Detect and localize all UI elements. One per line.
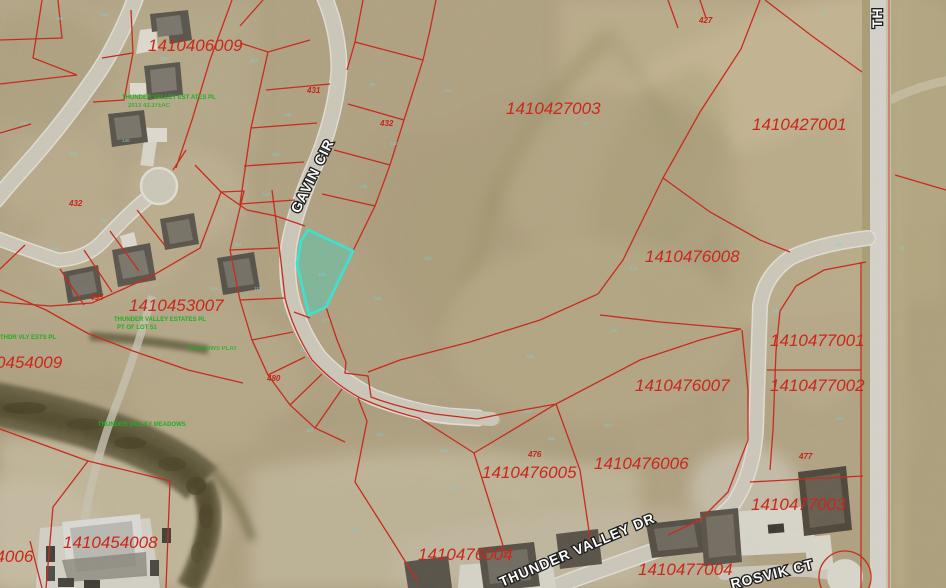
svg-text:PT OF LOT 51: PT OF LOT 51 — [117, 325, 157, 331]
svg-text:104: 104 — [374, 296, 382, 301]
svg-text:140: 140 — [122, 138, 130, 143]
svg-text:427: 427 — [698, 16, 713, 25]
svg-text:344: 344 — [250, 58, 258, 63]
svg-text:476: 476 — [527, 450, 542, 459]
svg-text:1410476006: 1410476006 — [594, 454, 689, 473]
svg-text:135: 135 — [360, 184, 368, 189]
svg-text:50: 50 — [836, 242, 842, 247]
svg-text:37: 37 — [822, 10, 828, 15]
svg-text:1410453007: 1410453007 — [129, 296, 224, 315]
svg-text:1410476004: 1410476004 — [418, 545, 513, 564]
svg-text:480: 480 — [266, 374, 281, 383]
svg-text:89: 89 — [370, 82, 376, 87]
svg-text:104: 104 — [772, 308, 780, 313]
svg-text:2013 43.37±AC: 2013 43.37±AC — [128, 103, 171, 109]
svg-text:1410427001: 1410427001 — [752, 115, 847, 134]
svg-text:1410477003: 1410477003 — [751, 495, 846, 514]
svg-text:THUNDER VALLEY EST ATES PL: THUNDER VALLEY EST ATES PL — [122, 95, 216, 101]
svg-text:MEADOWS PLAT: MEADOWS PLAT — [188, 346, 237, 352]
svg-text:THUNDER VALLEY MEADOWS: THUNDER VALLEY MEADOWS — [98, 422, 186, 428]
svg-text:21: 21 — [900, 246, 906, 251]
svg-text:495: 495 — [89, 293, 104, 302]
svg-text:118: 118 — [160, 56, 168, 61]
svg-text:107: 107 — [100, 218, 108, 223]
svg-text:132: 132 — [390, 141, 398, 146]
svg-text:104: 104 — [100, 12, 108, 17]
svg-text:120: 120 — [262, 192, 270, 197]
svg-text:135: 135 — [610, 328, 618, 333]
svg-text:104: 104 — [548, 436, 556, 441]
svg-text:0454009: 0454009 — [0, 353, 63, 372]
svg-text:1410477004: 1410477004 — [638, 560, 733, 579]
svg-text:1410406009: 1410406009 — [148, 36, 243, 55]
svg-text:137: 137 — [20, 121, 28, 126]
svg-text:104: 104 — [836, 416, 844, 421]
svg-text:104: 104 — [234, 242, 242, 247]
svg-text:1410477001: 1410477001 — [770, 331, 865, 350]
svg-text:1410476007: 1410476007 — [635, 376, 730, 395]
svg-text:186: 186 — [526, 354, 534, 359]
svg-text:1410477002: 1410477002 — [770, 376, 865, 395]
svg-text:128: 128 — [318, 272, 326, 277]
svg-text:143: 143 — [52, 246, 60, 251]
svg-text:104: 104 — [210, 286, 218, 291]
svg-text:150: 150 — [604, 423, 612, 428]
svg-text:102: 102 — [424, 256, 432, 261]
svg-text:126: 126 — [350, 528, 358, 533]
svg-text:477: 477 — [798, 452, 813, 461]
svg-text:214: 214 — [630, 266, 638, 271]
svg-text:225: 225 — [56, 16, 64, 21]
svg-text:THUNDER VALLEY ESTATES PL: THUNDER VALLEY ESTATES PL — [114, 317, 206, 323]
svg-text:138: 138 — [440, 448, 448, 453]
svg-text:177: 177 — [322, 318, 330, 323]
svg-text:431: 431 — [306, 86, 321, 95]
svg-text:54: 54 — [300, 348, 306, 353]
svg-text:1410476008: 1410476008 — [645, 247, 740, 266]
svg-text:1410427003: 1410427003 — [506, 99, 601, 118]
svg-text:26: 26 — [583, 121, 589, 126]
svg-text:104: 104 — [524, 409, 532, 414]
svg-text:39: 39 — [770, 238, 776, 243]
svg-text:128: 128 — [272, 152, 280, 157]
svg-text:104: 104 — [376, 432, 384, 437]
svg-text:115: 115 — [254, 286, 262, 291]
svg-text:TH: TH — [869, 7, 885, 28]
svg-text:THDR VLY ESTS PL: THDR VLY ESTS PL — [0, 335, 56, 341]
svg-text:1410476005: 1410476005 — [482, 463, 577, 482]
svg-text:432: 432 — [68, 199, 83, 208]
svg-text:1410454008: 1410454008 — [63, 533, 158, 552]
svg-text:162: 162 — [70, 151, 78, 156]
svg-text:432: 432 — [379, 119, 394, 128]
svg-text:135: 135 — [284, 112, 292, 117]
svg-text:104: 104 — [444, 88, 452, 93]
svg-text:110: 110 — [306, 428, 314, 433]
svg-text:139: 139 — [450, 486, 458, 491]
svg-text:54006: 54006 — [0, 547, 34, 566]
